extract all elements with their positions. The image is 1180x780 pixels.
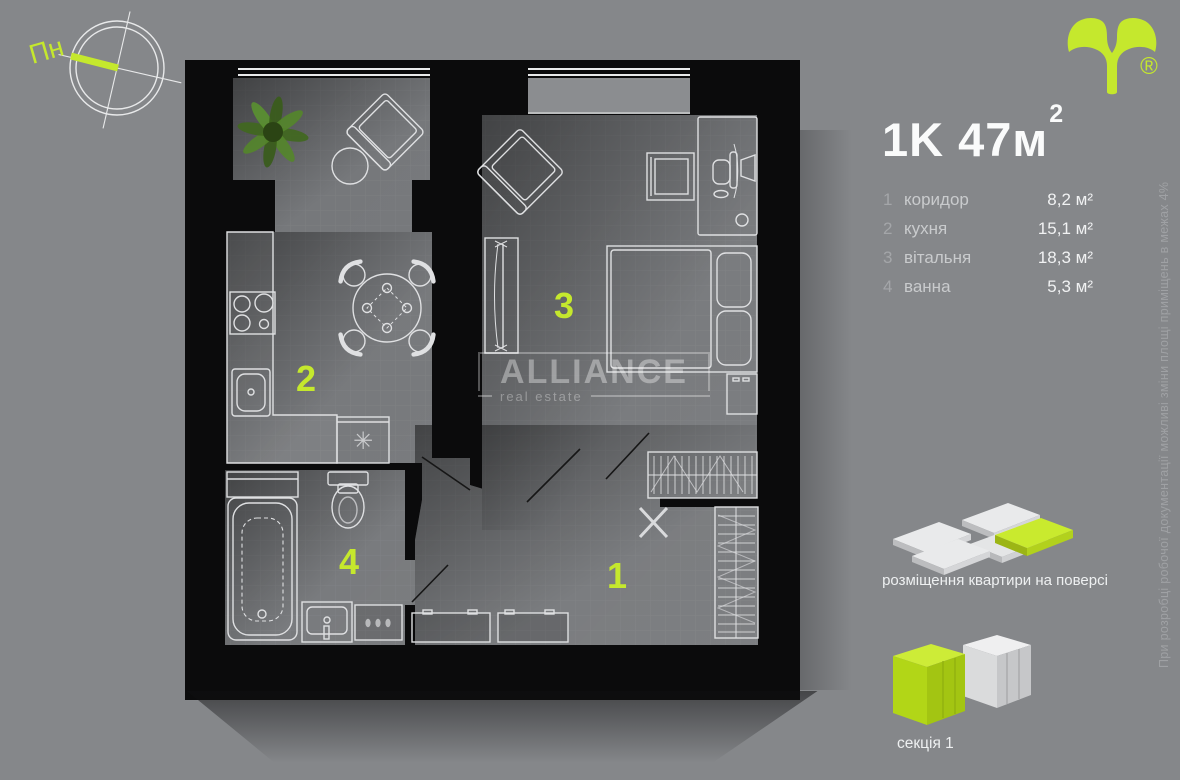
legend-area: 15,1 м² — [1038, 219, 1093, 239]
watermark-brand: ALLIANCE — [486, 355, 702, 391]
disclaimer-text: При розробці робочої документації можлив… — [1157, 238, 1171, 668]
balcony-recess — [528, 78, 690, 114]
legend-name: кухня — [904, 219, 947, 239]
watermark: ALLIANCE real estate — [478, 352, 710, 404]
brand-logo-icon: ® — [1062, 10, 1162, 96]
legend-row-kitchen: 2 кухня 15,1 м² — [883, 219, 1093, 239]
legend-num: 4 — [883, 277, 904, 297]
room-label-kitchen: 2 — [296, 358, 316, 399]
legend-name: вітальня — [904, 248, 971, 268]
legend-area: 8,2 м² — [1047, 190, 1093, 210]
section-caption: секція 1 — [897, 735, 954, 753]
legend-num: 3 — [883, 248, 904, 268]
legend-name: коридор — [904, 190, 969, 210]
section-diagram — [885, 633, 1045, 733]
legend-num: 1 — [883, 190, 904, 210]
room-label-living: 3 — [554, 285, 574, 326]
watermark-box: ALLIANCE — [478, 352, 710, 391]
floorplan-poster: { "colors": {"background":"#85878a","acc… — [0, 0, 1180, 780]
legend-row-corridor: 1 коридор 8,2 м² — [883, 190, 1093, 210]
compass-needle-north — [71, 56, 118, 68]
compass: Пн — [15, 8, 185, 136]
section-block-current — [893, 644, 965, 725]
legend-row-bathroom: 4 ванна 5,3 м² — [883, 277, 1093, 297]
room-label-corridor: 1 — [607, 555, 627, 596]
title-main: 1K 47 — [882, 113, 1012, 166]
title-sup: 2 — [1049, 100, 1064, 128]
page-title: 1K 47м2 — [882, 112, 1063, 167]
legend-num: 2 — [883, 219, 904, 239]
registered-trademark-icon: ® — [1140, 53, 1158, 80]
compass-north-label: Пн — [26, 31, 67, 69]
placement-caption: розміщення квартири на поверсі — [875, 572, 1115, 589]
title-unit: м — [1012, 113, 1048, 166]
hallway-cabinet-icon — [498, 610, 568, 642]
legend-row-living: 3 вітальня 18,3 м² — [883, 248, 1093, 268]
hallway-bench-icon — [412, 610, 490, 642]
room-legend: 1 коридор 8,2 м² 2 кухня 15,1 м² 3 вітал… — [883, 190, 1093, 306]
legend-area: 18,3 м² — [1038, 248, 1093, 268]
room-label-bathroom: 4 — [339, 541, 359, 582]
plan-drop-shadow — [187, 691, 837, 771]
plan-side-shadow — [800, 130, 852, 690]
floor-placement-diagram — [880, 482, 1090, 578]
towel-cabinet-icon — [355, 605, 402, 640]
legend-name: ванна — [904, 277, 951, 297]
washer-symbol: ✳ — [353, 428, 373, 455]
legend-area: 5,3 м² — [1047, 277, 1093, 297]
section-block-gray — [963, 635, 1031, 708]
